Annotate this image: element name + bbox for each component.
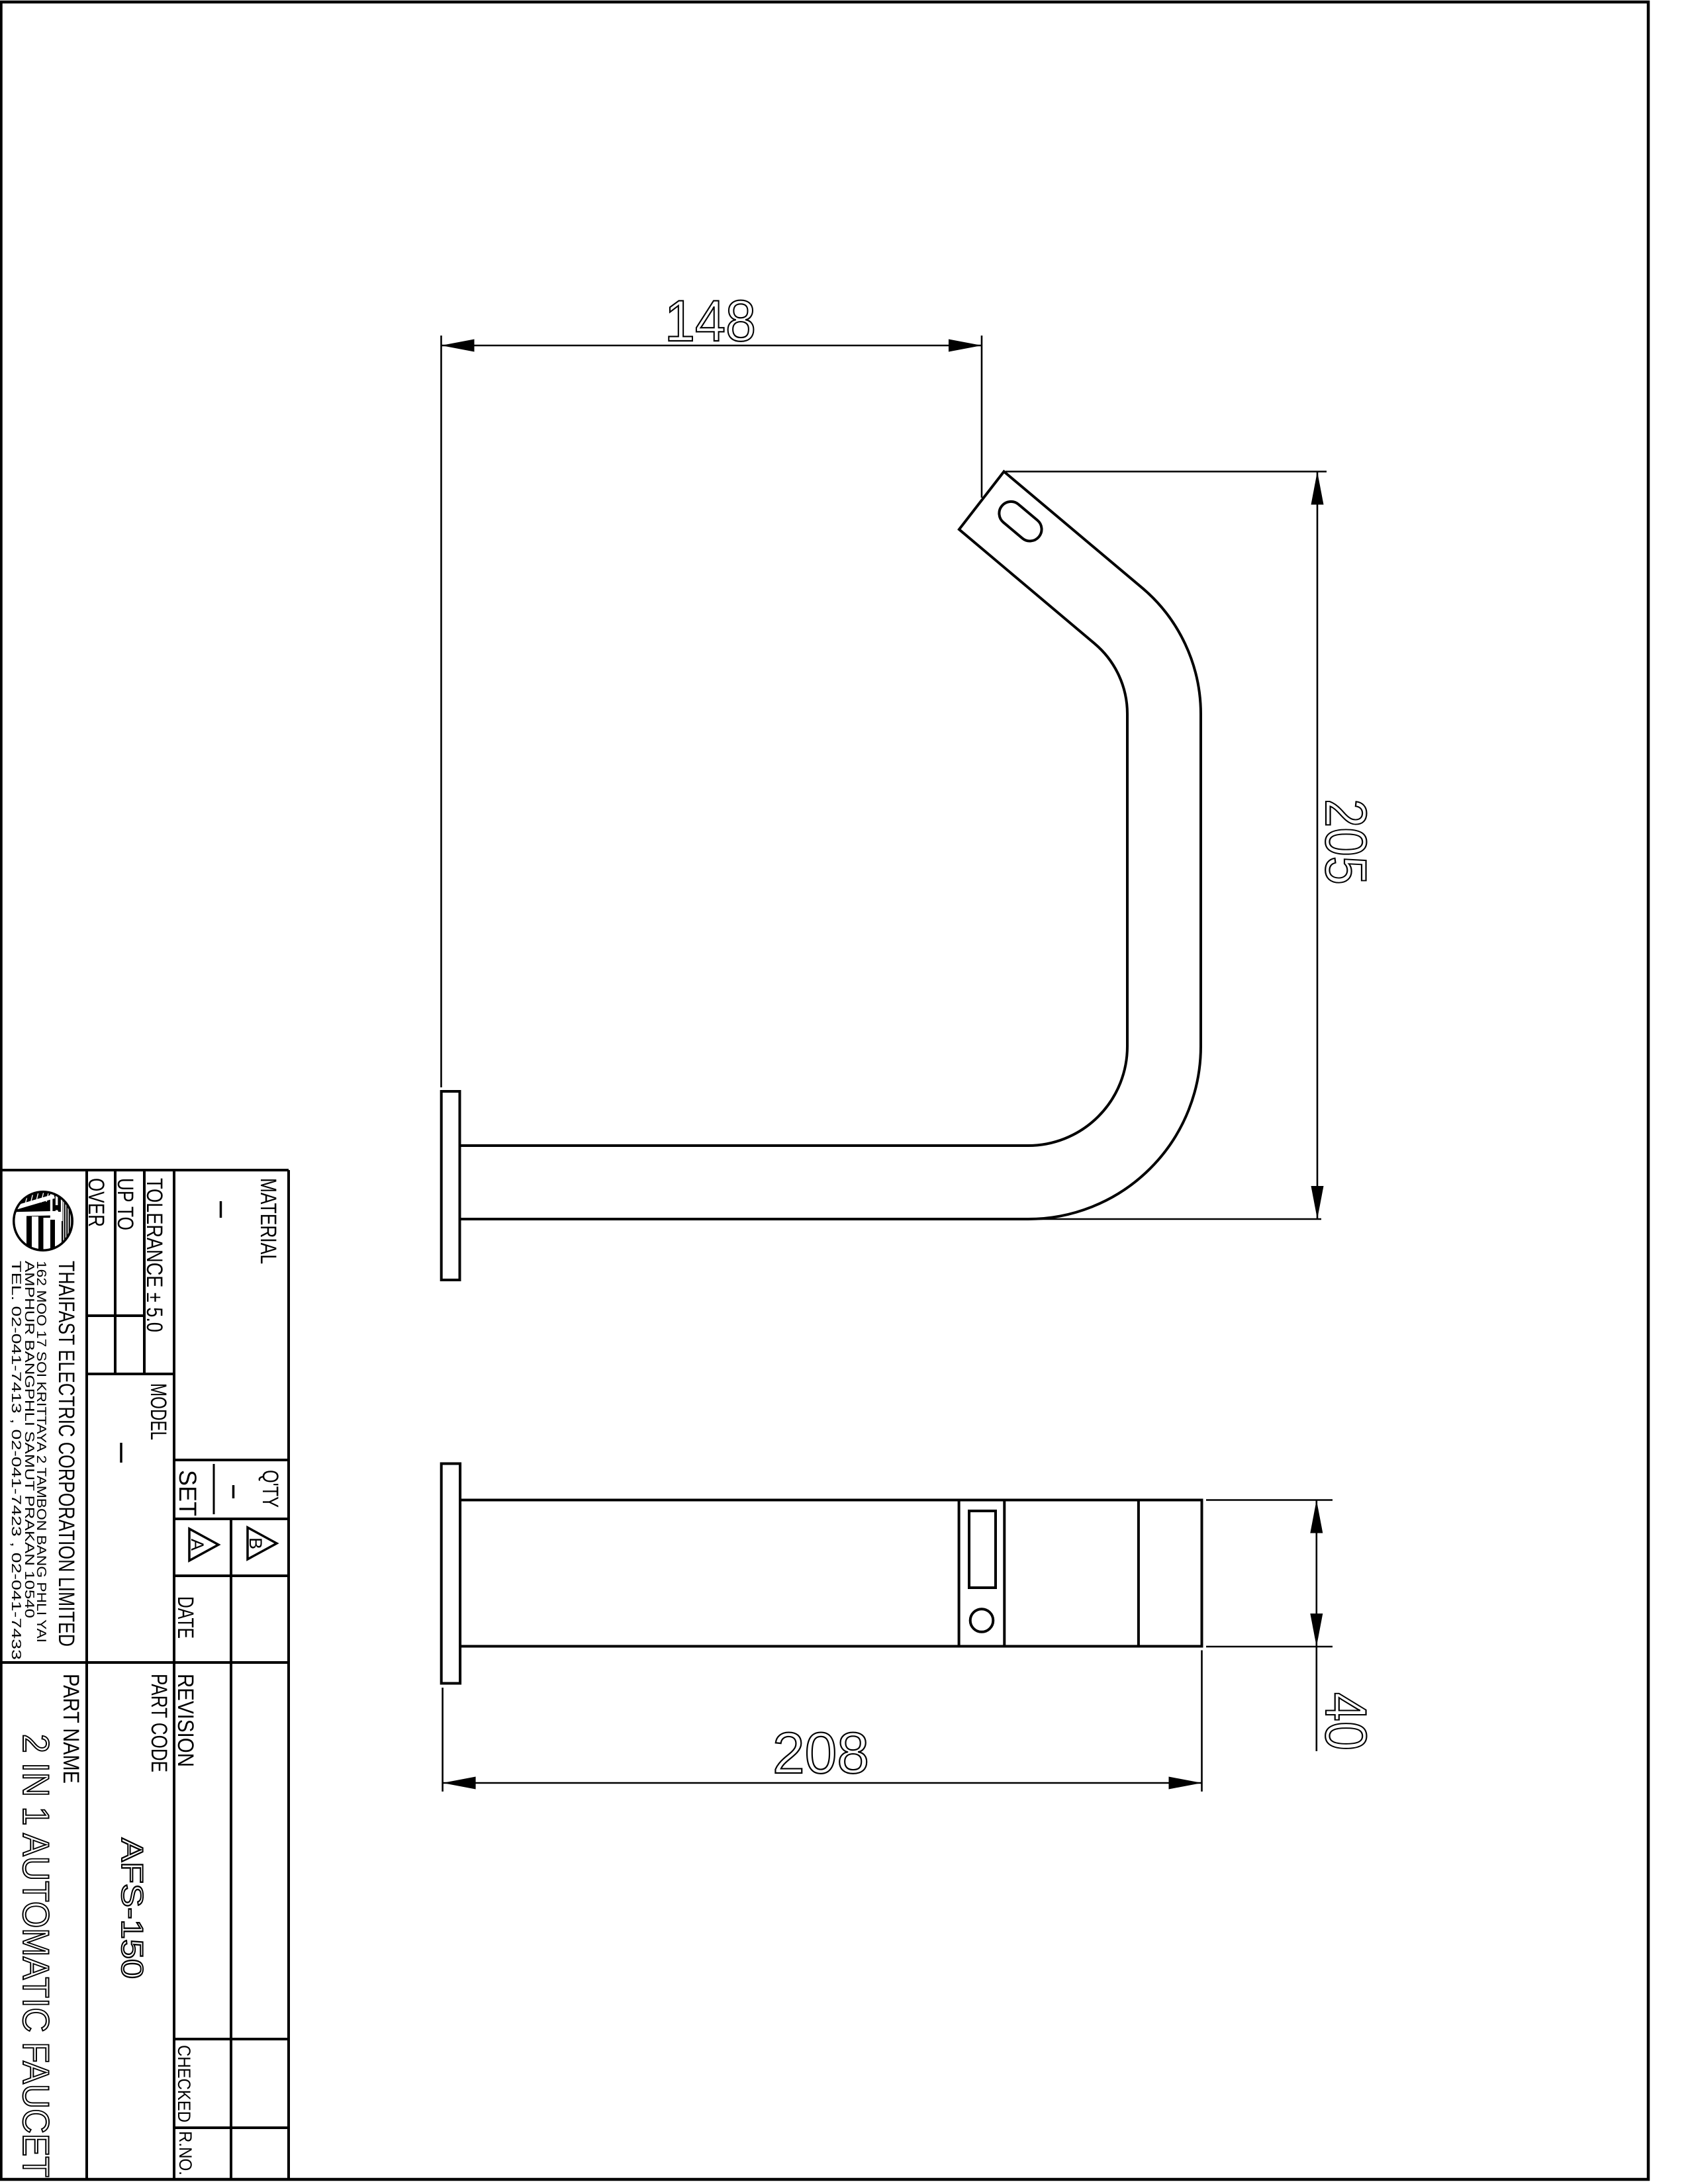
svg-text:A: A [187, 1539, 207, 1551]
svg-text:MODEL: MODEL [146, 1383, 171, 1440]
svg-text:TEL. 02-041-7413 , 02-041-7423: TEL. 02-041-7413 , 02-041-7423 , 02-041-… [9, 1261, 23, 1660]
svg-text:40: 40 [1313, 1692, 1379, 1751]
svg-text:2 IN 1 AUTOMATIC FAUCET: 2 IN 1 AUTOMATIC FAUCET [15, 1734, 57, 2177]
svg-text:R.NO.: R.NO. [175, 2131, 195, 2175]
svg-text:Q'TY: Q'TY [258, 1470, 283, 1508]
svg-text:OVER: OVER [83, 1178, 109, 1227]
svg-text:CHECKED: CHECKED [174, 2045, 194, 2122]
svg-text:THAIFAST ELECTRIC CORPORATION: THAIFAST ELECTRIC CORPORATION LIMITED [54, 1261, 79, 1647]
svg-text:MATERIAL: MATERIAL [256, 1178, 281, 1264]
svg-text:208: 208 [773, 1720, 869, 1786]
svg-text:205: 205 [1313, 799, 1379, 885]
svg-text:DATE: DATE [173, 1596, 198, 1639]
svg-text:REVISION: REVISION [173, 1674, 198, 1767]
svg-text:PART NAME: PART NAME [58, 1674, 83, 1784]
svg-text:UP TO: UP TO [113, 1178, 138, 1230]
svg-text:SET: SET [174, 1470, 201, 1516]
svg-text:B: B [246, 1537, 265, 1549]
svg-text:AMPHUR BANGPHLI SAMUT PRAKAN 1: AMPHUR BANGPHLI SAMUT PRAKAN 10540 [22, 1261, 36, 1618]
svg-text:PART CODE: PART CODE [146, 1674, 171, 1772]
svg-text:AFS-150: AFS-150 [115, 1838, 150, 1979]
svg-text:148: 148 [665, 288, 756, 353]
svg-text:TOLERANCE ± 5.0: TOLERANCE ± 5.0 [142, 1178, 167, 1332]
